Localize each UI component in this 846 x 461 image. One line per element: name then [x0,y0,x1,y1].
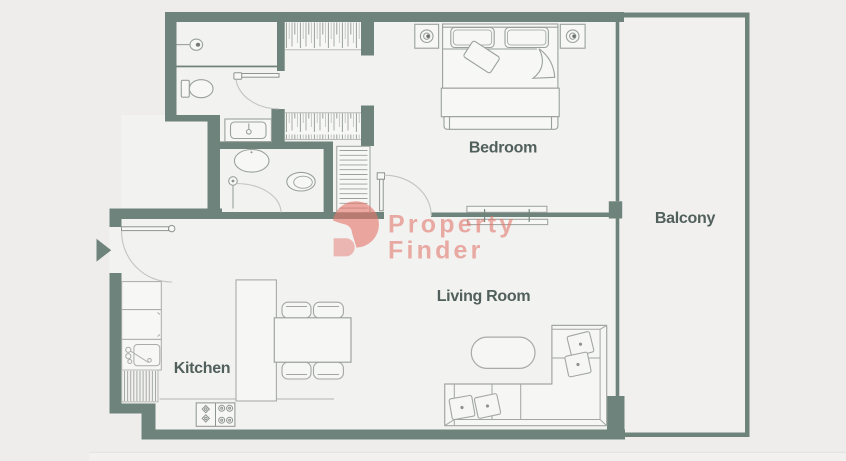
svg-text:Finder: Finder [388,237,484,265]
svg-text:Property: Property [388,211,516,239]
svg-text:Kitchen: Kitchen [174,360,231,377]
svg-text:Balcony: Balcony [655,210,716,227]
svg-text:Living Room: Living Room [437,288,531,305]
svg-text:Bedroom: Bedroom [469,139,537,156]
